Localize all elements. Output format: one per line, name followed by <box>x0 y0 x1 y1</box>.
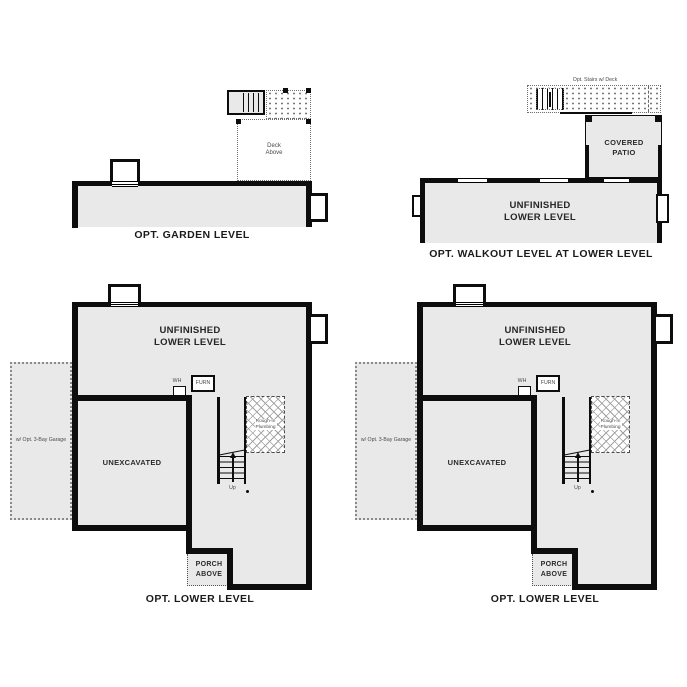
rough-in-plumbing-label: Rough-In Plumbing <box>255 419 277 431</box>
lower-right-wall <box>306 302 312 590</box>
lower-level-caption: OPT. LOWER LEVEL <box>90 593 310 605</box>
water-heater-label: WH <box>170 378 184 384</box>
stair-up-arrowhead <box>230 452 236 458</box>
stair-up-arrow <box>577 457 579 482</box>
stair-up-label: Up <box>226 485 239 491</box>
lower-right-window-well <box>653 314 673 344</box>
furnace-box: FURN <box>536 375 560 392</box>
porch-above-label: PORCH ABOVE <box>196 560 223 579</box>
lower-window-well <box>108 284 141 304</box>
unexcavated-right-wall <box>186 395 192 531</box>
lower-level-caption: OPT. LOWER LEVEL <box>435 593 655 605</box>
unexcavated-label: UNEXCAVATED <box>427 458 527 468</box>
stair-up-arrow <box>232 457 234 482</box>
unexcavated-right-wall <box>531 395 537 531</box>
rough-in-plumbing-area: Rough-In Plumbing <box>591 396 630 453</box>
water-heater-box <box>173 386 186 396</box>
lower-window-glazing <box>456 302 483 307</box>
lower-window-well <box>453 284 486 304</box>
lower-right-window-well <box>308 314 328 344</box>
furnace-label: FURN <box>541 380 555 386</box>
furnace-box: FURN <box>191 375 215 392</box>
floorplan-sheet: Deck Above OPT. GARDEN LEVEL Opt. Stairs… <box>0 0 687 687</box>
porch-above-area: PORCH ABOVE <box>187 554 230 586</box>
lower-right-wall <box>651 302 657 590</box>
porch-top-wall <box>186 548 233 554</box>
lower-level-plan-right: w/ Opt. 3-Bay Garage PORCH ABOVE UNFINIS… <box>345 0 687 687</box>
stair-up-label: Up <box>571 485 584 491</box>
lower-left-wall <box>72 302 78 531</box>
water-heater-label: WH <box>515 378 529 384</box>
lower-bottom-wall <box>572 584 657 590</box>
water-heater-box <box>518 386 531 396</box>
unexcavated-label: UNEXCAVATED <box>82 458 182 468</box>
reference-dot <box>591 490 594 493</box>
rough-in-plumbing-label: Rough-In Plumbing <box>600 419 622 431</box>
opt-garage-label: w/ Opt. 3-Bay Garage <box>11 437 71 443</box>
reference-dot <box>246 490 249 493</box>
lower-level-plan-left: w/ Opt. 3-Bay Garage PORCH ABOVE UNFINIS… <box>0 0 345 687</box>
stair-up-arrowhead <box>575 452 581 458</box>
unexcavated-bottom-wall <box>417 525 537 531</box>
porch-above-area: PORCH ABOVE <box>532 554 575 586</box>
rough-in-plumbing-area: Rough-In Plumbing <box>246 396 285 453</box>
lower-window-glazing <box>111 302 138 307</box>
furnace-label: FURN <box>196 380 210 386</box>
porch-above-label: PORCH ABOVE <box>541 560 568 579</box>
porch-top-wall <box>531 548 578 554</box>
lower-room-label: UNFINISHED LOWER LEVEL <box>440 325 630 350</box>
lower-room-label: UNFINISHED LOWER LEVEL <box>95 325 285 350</box>
lower-left-wall <box>417 302 423 531</box>
opt-garage-label: w/ Opt. 3-Bay Garage <box>356 437 416 443</box>
unexcavated-bottom-wall <box>72 525 192 531</box>
lower-bottom-wall <box>227 584 312 590</box>
